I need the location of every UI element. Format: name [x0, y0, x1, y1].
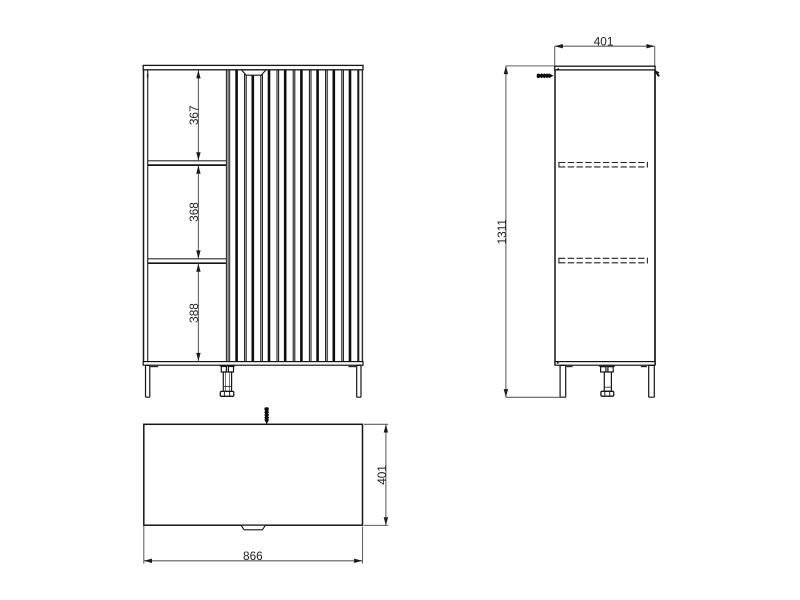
svg-text:388: 388 [187, 303, 201, 323]
svg-text:1311: 1311 [495, 219, 509, 244]
svg-text:401: 401 [375, 465, 389, 485]
svg-text:866: 866 [243, 549, 263, 563]
svg-text:368: 368 [187, 202, 201, 222]
svg-text:367: 367 [187, 105, 201, 125]
svg-text:401: 401 [594, 35, 614, 49]
